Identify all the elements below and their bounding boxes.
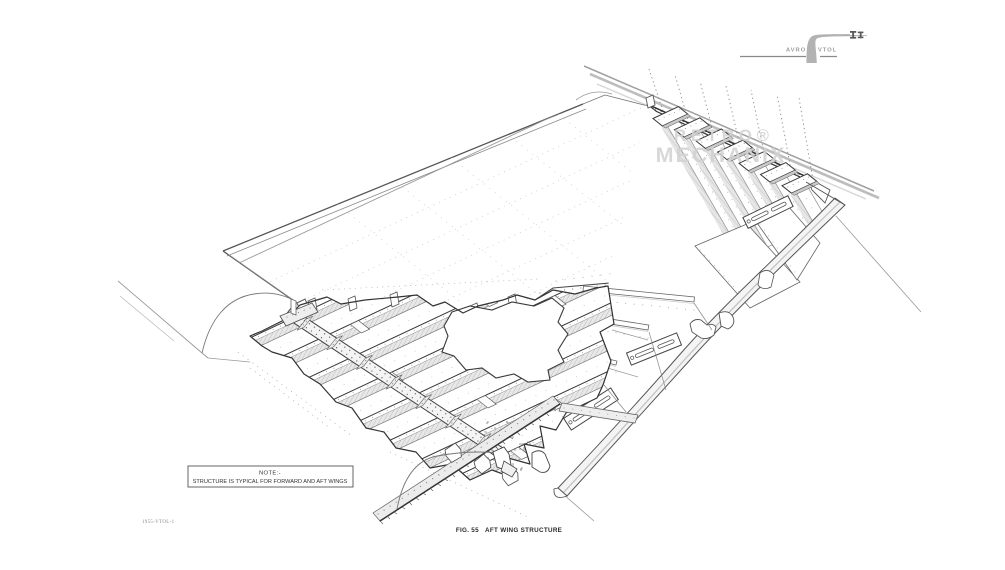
svg-text:MECHANIX: MECHANIX xyxy=(656,143,787,167)
svg-text:FIG. 55 AFT WING STRUCTURE: FIG. 55 AFT WING STRUCTURE xyxy=(456,527,562,534)
svg-text:1955-VTOL-1: 1955-VTOL-1 xyxy=(142,520,175,525)
svg-text:STRUCTURE IS TYPICAL FOR FORWA: STRUCTURE IS TYPICAL FOR FORWARD AND AFT… xyxy=(193,479,348,485)
svg-text:AVRO: AVRO xyxy=(786,48,806,54)
svg-text:VTOL: VTOL xyxy=(818,48,837,54)
svg-text:NOTE:-: NOTE:- xyxy=(259,471,281,477)
